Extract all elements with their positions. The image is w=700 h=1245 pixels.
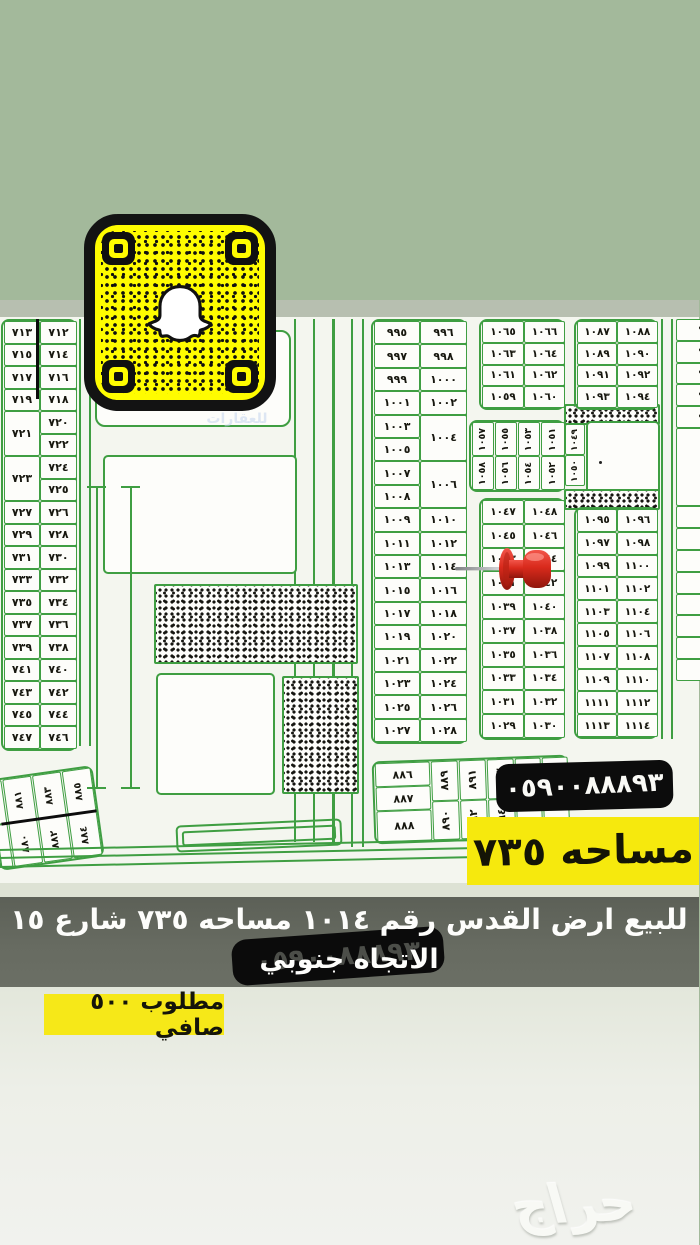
plot-cell: ١٠٣٤ [525, 667, 566, 691]
map-mark-line [37, 319, 40, 399]
facility-block [155, 584, 359, 664]
plot-cell: ١٠٠٧ [375, 461, 421, 484]
plot-cell: ٩ [677, 594, 700, 616]
phone-number-pill: ٠٥٩٠٠٨٨٨٩٣ [496, 760, 674, 813]
plot-cell: ١٠٩٠ [618, 343, 659, 365]
snapchat-ghost-icon [144, 281, 218, 345]
plot-cell: ١٠٢٤ [421, 672, 468, 695]
plot-cell: ٩٩٦ [421, 321, 468, 344]
plot-cell: ٧٢٣ [5, 456, 41, 501]
plot-cell: ١٠٠١ [375, 391, 421, 414]
plot-cell: ٧٣٦ [41, 614, 78, 637]
plot-cell: ٩٠ [677, 341, 700, 363]
plot-cell: ٨٨٤ [69, 811, 104, 859]
plot-cell: ١٠٣٧ [483, 619, 525, 643]
phone-number: ٠٥٩٠٠٨٨٨٩٣ [506, 768, 666, 805]
plot-cell: ١٠٢٢ [421, 649, 468, 672]
plot-cell: ٨٨٨ [377, 809, 433, 842]
haraj-watermark-text: حراج [504, 1173, 645, 1237]
plot-cell: ٩ [677, 659, 700, 681]
pin-block-1029-1048: ١٠٤٧١٠٤٥١٠٤٣١٠٤١١٠٣٩١٠٣٧١٠٣٥١٠٣٣١٠٣١١٠٢٩… [480, 498, 566, 740]
plot-cell: ٧١٢ [41, 321, 78, 344]
plot-cell: ١٠٩٨ [618, 532, 659, 555]
right-plots-upper: ١٠٨٧١٠٨٩١٠٩١١٠٩٣١٠٨٨١٠٩٠١٠٩٢١٠٩٤ [575, 319, 659, 410]
plot-cell: ٨٨٧ [377, 785, 433, 811]
plot-cell: ٧٣٩ [5, 636, 41, 659]
plot-cell: ١٠٣٨ [525, 619, 566, 643]
plot-cell: ٧٣٠ [41, 546, 78, 569]
area-label: مساحه ٧٣٥ [473, 826, 695, 876]
right-plots-lower: ١٠٩٥١٠٩٧١٠٩٩١١٠١١١٠٣١١٠٥١١٠٧١١٠٩١١١١١١١٣… [575, 507, 659, 739]
center-plots: ٩٩٥٩٩٧٩٩٩١٠٠١١٠٠٣١٠٠٥١٠٠٧١٠٠٨١٠٠٩١٠١١١٠١… [372, 319, 468, 744]
plot-cell: ١٠٦٠ [525, 386, 566, 408]
plot-cell: ٩٩٩ [375, 368, 421, 391]
plot-cell: ٧١٦ [41, 366, 78, 389]
plot-cell: ١٠٥٩ [483, 386, 525, 408]
plot-cell: ١٠٥٠ [566, 455, 586, 486]
sideways-1051-1058: ١٠٥٧١٠٥٨١٠٥٥١٠٥٦١٠٥٣١٠٥٤١٠٥١١٠٥٢ [470, 420, 566, 492]
plot-cell: ٧٢٢ [41, 434, 78, 457]
plot-cell: ١٠٩٩ [578, 555, 618, 578]
haraj-watermark: حراج [470, 1172, 680, 1238]
plot-cell: ٧٤٠ [41, 659, 78, 682]
plot-cell: ٧٢٦ [41, 501, 78, 524]
plot-cell: ١٠٤٧ [483, 500, 525, 524]
plot-cell: ١٠٢٠ [421, 625, 468, 648]
plot-cell: ٧١٥ [5, 344, 41, 367]
plot-cell: ١٠٦٦ [525, 321, 566, 343]
plot-cell: ١٠٢٧ [375, 719, 421, 742]
plot-cell: ٨٩١ [460, 759, 488, 800]
plot-cell: ١٠٩٦ [618, 509, 659, 532]
plot-cell: ١١٠٦ [618, 623, 659, 646]
plot-cell: ١٠٩١ [578, 365, 618, 387]
plot-cell: ١٠١٣ [375, 555, 421, 578]
plot-cell: ٧٣٧ [5, 614, 41, 637]
plot-cell: ١٠٢٣ [375, 672, 421, 695]
edge-partial-plots: ٩٤٩٠٩١٩١٩١٩٩٩٩٩٩٩٩ [677, 319, 700, 685]
plot-cell: ٧٣٤ [41, 591, 78, 614]
empty-block [157, 673, 276, 795]
agency-watermark: للعقارات [178, 411, 298, 427]
plot-cell: ٩١ [677, 406, 700, 428]
plot-cell: ١٠٨٨ [618, 321, 659, 343]
plot-cell: ١٠٢٥ [375, 695, 421, 718]
plot-cell: ١٠٢٦ [421, 695, 468, 718]
road-line [363, 319, 365, 847]
price-highlight: مطلوب ٥٠٠ صافي [45, 994, 225, 1035]
plot-cell: ٩١ [677, 363, 700, 385]
plot-cell: ١٠٩٣ [578, 386, 618, 408]
qr-finder-icon [103, 232, 136, 265]
plot-cell [677, 428, 700, 506]
plot-cell: ٧٣٣ [5, 569, 41, 592]
road-cap [88, 787, 107, 789]
listing-screenshot: { "colors": { "background_sage": "#a3b99… [0, 0, 700, 1245]
plot-cell: ١٠٣٠ [525, 714, 566, 738]
qr-finder-icon [226, 232, 259, 265]
plot-cell: ١٠٠٩ [375, 508, 421, 531]
plot-cell: ١٠٢٩ [483, 714, 525, 738]
plot-cell: ١١٠٨ [618, 646, 659, 669]
plot-cell: ٧٤١ [5, 659, 41, 682]
plot-cell: ٧٢٧ [5, 501, 41, 524]
plot-cell: ١٠١٨ [421, 602, 468, 625]
plot-cell: ١٠٩٥ [578, 509, 618, 532]
plot-cell: ١٠٥٨ [473, 456, 495, 490]
area-highlight: مساحه ٧٣٥ [468, 817, 700, 885]
plot-cell: ١٠٠٠ [421, 368, 468, 391]
plot-cell: ٨٨٦ [376, 761, 432, 787]
plot-cell: ٧٤٢ [41, 681, 78, 704]
plot-cell: ١٠٥٥ [496, 422, 518, 456]
plot-cell: ١١٠٤ [618, 600, 659, 623]
plot-cell: ٩ [677, 637, 700, 659]
plot-cell: ١٠٢١ [375, 649, 421, 672]
plot-cell: ٧٢١ [5, 411, 41, 456]
plot-cell: ١١٠٩ [578, 669, 618, 692]
plot-cell: ٧٢٩ [5, 524, 41, 547]
location-pin-icon [452, 536, 558, 602]
plot-cell: ١٠٩٧ [578, 532, 618, 555]
plot-cell: ١٠١٧ [375, 602, 421, 625]
caption-banner: ٠٥٩٠٠٨٨٨٩٣ للبيع ارض القدس رقم ١٠١٤ مساح… [0, 897, 700, 987]
qr-finder-icon [103, 360, 136, 393]
plot-cell: ٧١٤ [41, 344, 78, 367]
road-cap [122, 787, 141, 789]
mosque-dot [600, 461, 603, 464]
plot-cell: ١٠٨٩ [578, 343, 618, 365]
plot-cell: ١١١٠ [618, 669, 659, 692]
plot-cell: ١١١٣ [578, 714, 618, 737]
plot-cell: ١٠٣٢ [525, 690, 566, 714]
plot-cell: ١١٠٧ [578, 646, 618, 669]
plot-cell: ١١٠٥ [578, 623, 618, 646]
road-line [131, 487, 133, 788]
plot-cell: ١٠٠٦ [421, 461, 468, 508]
plot-cell: ٩٩٧ [375, 344, 421, 367]
block-1059-1066: ١٠٦٥١٠٦٣١٠٦١١٠٥٩١٠٦٦١٠٦٤١٠٦٢١٠٦٠ [480, 319, 566, 410]
plot-cell: ١٠٦١ [483, 365, 525, 387]
plot-cell: ١٠٦٣ [483, 343, 525, 365]
plot-cell: ٩ [677, 550, 700, 572]
road-line [662, 319, 664, 739]
plot-cell: ١٠٦٥ [483, 321, 525, 343]
plot-cell: ٨٨٥ [63, 767, 98, 815]
plot-cell: ١٠٢٨ [421, 719, 468, 742]
gap-strip [0, 883, 700, 897]
plot-cell: ١٠٨٧ [578, 321, 618, 343]
plot-cell: ١٠٦٤ [525, 343, 566, 365]
plot-cell: ٨٨٩ [432, 760, 460, 801]
plot-cell: ١٠١٠ [421, 508, 468, 531]
plot-cell: ٨٩٠ [433, 800, 461, 841]
plot-cell: ١١٠٢ [618, 577, 659, 600]
plot-cell: ٩ [677, 506, 700, 528]
plot-cell: ١٠٩٤ [618, 386, 659, 408]
qr-finder-icon [226, 360, 259, 393]
plot-cell: ١١٠٣ [578, 600, 618, 623]
plot-cell: ١١١١ [578, 691, 618, 714]
plot-cell: ١٠٠٣ [375, 415, 421, 438]
road-line [672, 319, 674, 739]
plot-cell: ١١١٤ [618, 714, 659, 737]
plot-cell: ٧٢٠ [41, 411, 78, 434]
plot-cell: ٧٤٧ [5, 726, 41, 749]
plot-cell: ٩١ [677, 384, 700, 406]
plot-cell: ١٠٦٢ [525, 365, 566, 387]
plot-cell: ١٠٠٢ [421, 391, 468, 414]
plot-cell: ٧٢٥ [41, 479, 78, 502]
plot-cell: ٩ [677, 572, 700, 594]
plot-cell: ١٠٥٦ [496, 456, 518, 490]
plot-cell: ٧٢٤ [41, 456, 78, 479]
left-plots: ٧١٣٧١٥٧١٧٧١٩٧٢١٧٢٣٧٢٧٧٢٩٧٣١٧٣٣٧٣٥٧٣٧٧٣٩٧… [2, 319, 78, 751]
plot-cell: ٩ [677, 615, 700, 637]
plot-cell: ٩ [677, 528, 700, 550]
plot-cell: ٧٢٨ [41, 524, 78, 547]
plot-cell: ١١٠١ [578, 577, 618, 600]
plot-cell: ٩٤ [677, 319, 700, 341]
plot-cell: ٨٨٣ [33, 772, 68, 820]
plot-cell: ١٠٣٦ [525, 643, 566, 667]
plot-cell: ١١١٢ [618, 691, 659, 714]
plot-cell: ١٠٠٨ [375, 485, 421, 508]
plot-cell: ١٠٣٣ [483, 667, 525, 691]
plot-cell: ١٠٥١ [542, 422, 566, 456]
facility-block [283, 676, 360, 794]
plot-cell: ٧١٣ [5, 321, 41, 344]
plot-cell: ١٠٥٤ [519, 456, 541, 490]
road-line [97, 487, 99, 788]
road-cap [88, 486, 107, 488]
plot-cell: ٨٨١ [3, 776, 38, 824]
plot-cell: ١٠٠٥ [375, 438, 421, 461]
plot-cell: ٧٣٨ [41, 636, 78, 659]
plot-cell: ١٠٣١ [483, 690, 525, 714]
plot-cell: ٨٨٠ [9, 819, 44, 867]
price-label: مطلوب ٥٠٠ صافي [45, 989, 225, 1041]
plot-cell: ٧٤٤ [41, 704, 78, 727]
plot-cell: ١٠٥٣ [519, 422, 541, 456]
plot-cell: ١٠١٥ [375, 578, 421, 601]
banner-subtitle: الاتجاه جنوبي [0, 944, 700, 975]
mosque-labels: ١٠٤٩١٠٥٠ [566, 424, 587, 490]
plot-cell: ١١٠٠ [618, 555, 659, 578]
plot-cell: ٧٣٥ [5, 591, 41, 614]
empty-block [104, 455, 298, 574]
plot-cell: ٧١٧ [5, 366, 41, 389]
plot-cell: ١٠١٩ [375, 625, 421, 648]
plot-cell: ١٠٩٢ [618, 365, 659, 387]
plot-cell: ١٠٤٨ [525, 500, 566, 524]
plot-cell: ٧٣١ [5, 546, 41, 569]
plot-cell: ٧١٨ [41, 389, 78, 412]
plot-cell: ١٠٣٥ [483, 643, 525, 667]
road-cap [122, 486, 141, 488]
plot-cell: ١٠١١ [375, 532, 421, 555]
plot-cell: ٧٤٣ [5, 681, 41, 704]
plot-cell: ١٠٤٩ [566, 424, 586, 455]
plot-cell: ٩٩٥ [375, 321, 421, 344]
snapchat-qr-code [85, 214, 277, 411]
plot-cell: ١٠٥٧ [473, 422, 495, 456]
plot-cell: ١٠٥٢ [542, 456, 566, 490]
plot-cell: ٧٤٦ [41, 726, 78, 749]
plot-cell: ٧١٩ [5, 389, 41, 412]
plot-cell: ١٠٠٤ [421, 415, 468, 462]
road-line [80, 319, 82, 746]
banner-title: للبيع ارض القدس رقم ١٠١٤ مساحه ٧٣٥ شارع … [0, 903, 700, 936]
plot-cell: ٧٣٢ [41, 569, 78, 592]
plot-cell: ٧٤٥ [5, 704, 41, 727]
plot-cell: ٩٩٨ [421, 344, 468, 367]
